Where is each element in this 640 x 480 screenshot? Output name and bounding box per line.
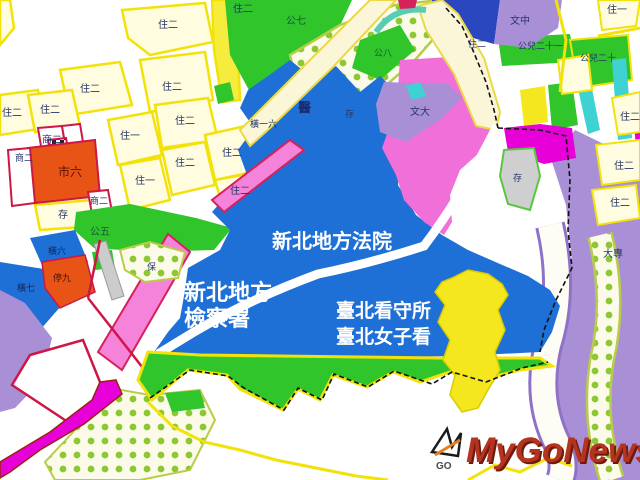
zone-label: 公八 [374,48,392,58]
zone-label: 住二 [610,196,630,209]
watermark-icon-label: GO [436,461,452,472]
zone-label: 公兒二十 [580,52,616,63]
zone-label: 醫 [298,100,311,115]
zone-label: 住一 [135,174,155,187]
prosecutor-label-line1: 新北地方 [184,280,272,305]
zone-label: 大專 [603,247,623,260]
zone-label: 文大 [410,105,430,118]
zone-label: 商二 [15,152,33,163]
zone-label: 住二 [620,110,640,123]
zone-label: 住二 [468,38,486,49]
green-wedge [165,390,205,412]
zone-label: 停九 [53,272,71,283]
zone-label: 住二 [175,114,195,127]
zone-label: 商二 [42,133,62,146]
watermark-brand: MyGoNews [466,431,640,470]
zone-label: 住二 [175,156,195,169]
zone-label: 市六 [58,164,82,179]
zone-label: 住二 [233,2,253,15]
zone-label: 住二 [230,184,250,197]
zone-label: 存 [513,172,522,183]
zone-label: 保 [147,261,156,272]
zone-label: 住二 [614,159,634,172]
zone-label: 橫七 [17,282,35,293]
zone-label: 住一 [120,129,140,142]
zone-label: 公兒二十一 [518,40,563,51]
zone-label: 公七 [286,15,306,27]
zone-label: 住二 [40,103,60,116]
zone-label: 住二 [80,82,100,95]
court-label: 新北地方法院 [272,229,392,253]
zone-label: 住二 [222,146,242,159]
zone-label: 住一 [607,3,627,16]
zone-label: 住二 [2,106,22,119]
women-detention-label: 臺北女子看 [336,325,431,348]
zone-label: 存 [345,108,354,119]
zone-label: 橫一六 [250,118,277,129]
zone-label: 文中 [510,14,530,27]
zone-label: 橫六 [48,245,66,256]
zoning-map-canvas: 住二 住二 住二 住二 住二 住二 住二 住一 住二 住二 住一 住二 住二 住… [0,0,640,480]
zone-label: 住二 [158,18,178,31]
zone-label: 住二 [162,80,182,93]
detention-label: 臺北看守所 [336,299,431,322]
prosecutor-label-line2: 檢察署 [184,306,250,331]
zoning-map: 住二 住二 住二 住二 住二 住二 住二 住一 住二 住二 住一 住二 住二 住… [0,0,640,480]
zone-label: 公五 [90,227,110,238]
zone-label: 商二 [90,195,108,206]
zone-label: 存 [58,208,68,221]
